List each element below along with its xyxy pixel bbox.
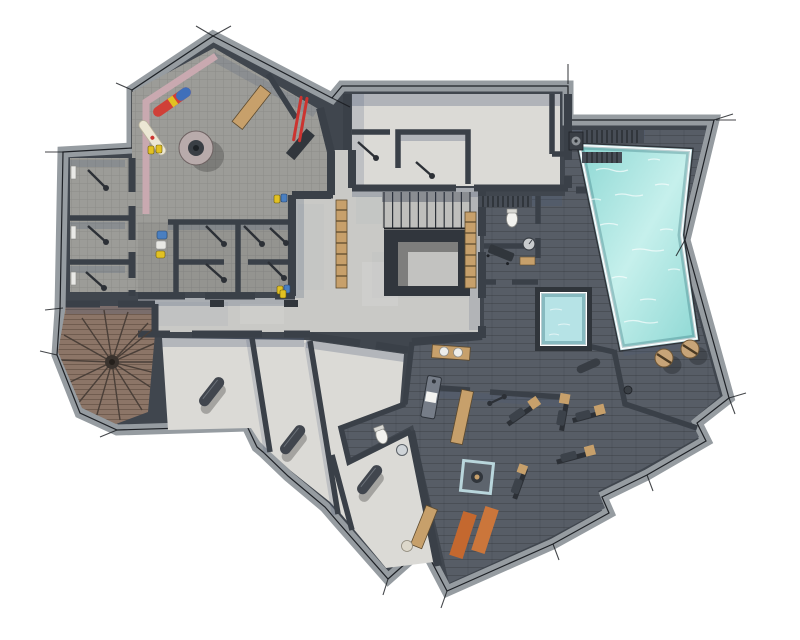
plunge-water	[541, 293, 586, 345]
floor-drain	[624, 386, 632, 394]
exercise-ball	[402, 541, 413, 552]
plunge-pool	[538, 290, 589, 348]
wall-ladder-west	[336, 200, 347, 288]
spiral-center-cap	[109, 359, 115, 365]
corridor-step	[284, 300, 298, 307]
radiator	[71, 166, 76, 179]
radiator	[71, 272, 76, 285]
wall-ladder-east	[465, 212, 476, 288]
spa-slatted-bench	[478, 196, 532, 207]
sauna-heater	[569, 132, 583, 150]
vanity-counter	[432, 345, 471, 361]
sauna-bench-upper	[582, 130, 644, 143]
stair-shadow	[382, 192, 470, 202]
glass-enclosure	[461, 461, 494, 494]
wc-basin	[397, 445, 408, 456]
floor-plan-canvas	[0, 0, 800, 640]
radiator	[71, 226, 76, 239]
sauna-bench-lower	[582, 152, 622, 163]
floor-plan-stage	[0, 0, 800, 640]
spa-gauge	[523, 238, 535, 250]
corridor-step	[210, 300, 224, 307]
wooden-foot-mat	[520, 257, 535, 265]
spa-toilet	[507, 209, 518, 227]
